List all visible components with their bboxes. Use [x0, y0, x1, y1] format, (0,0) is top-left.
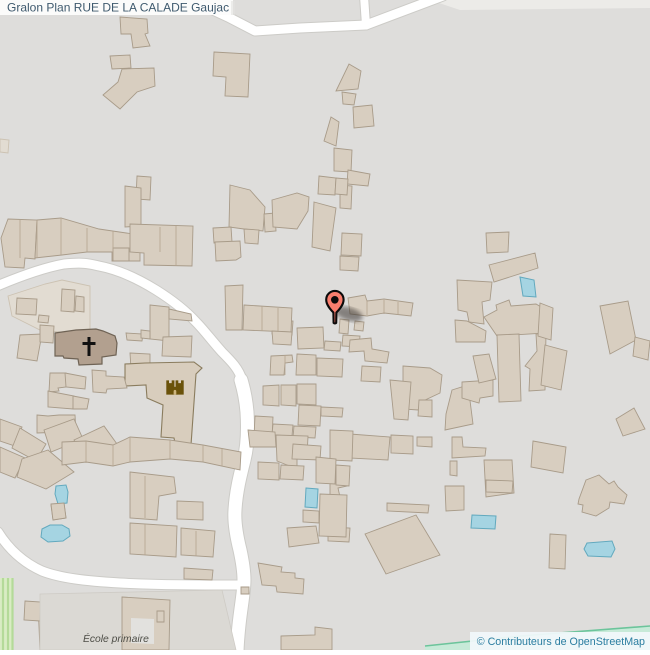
svg-text:École primaire: École primaire — [83, 632, 149, 645]
svg-text:Gralon Plan RUE DE LA CALADE G: Gralon Plan RUE DE LA CALADE Gaujac — [7, 1, 229, 15]
svg-text:© Contributeurs de OpenStreetM: © Contributeurs de OpenStreetMap — [477, 636, 645, 648]
